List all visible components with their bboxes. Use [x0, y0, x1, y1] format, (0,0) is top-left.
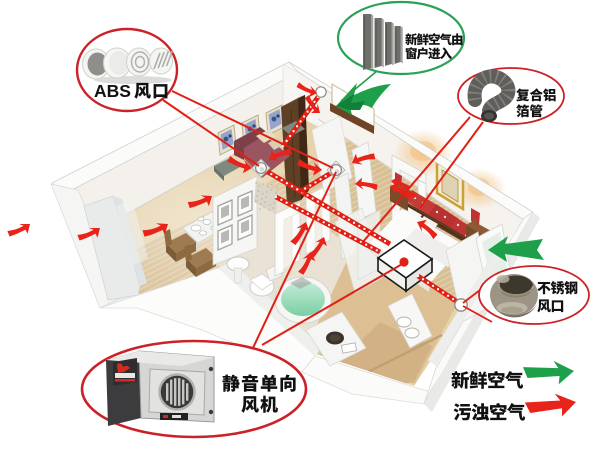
- svg-text:ABS: ABS: [94, 81, 131, 101]
